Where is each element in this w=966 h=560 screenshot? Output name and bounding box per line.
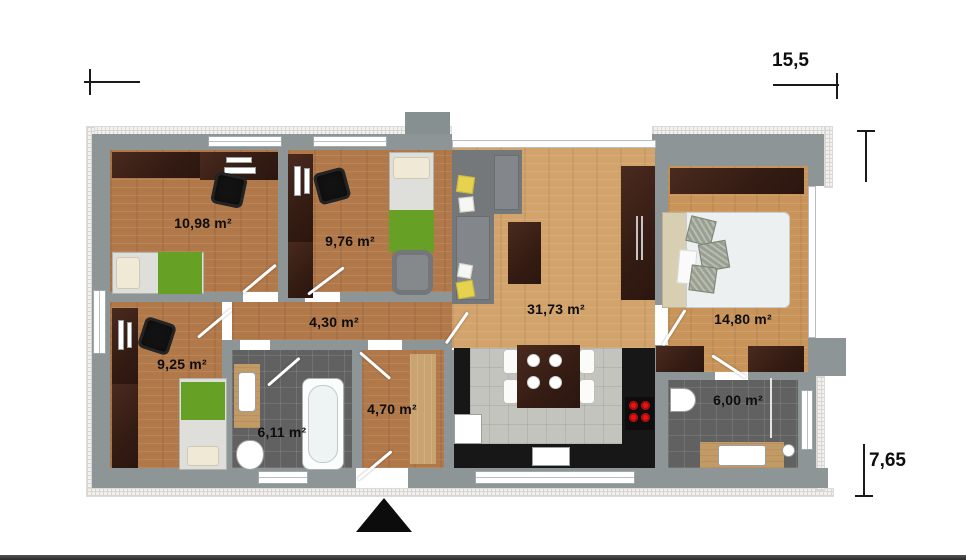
room3-desk xyxy=(112,308,138,384)
room2-desk-monitor xyxy=(294,166,301,196)
living-room-area-label: 31,73 m² xyxy=(506,301,606,317)
wall-bedroom-bottom-a xyxy=(668,372,715,380)
living-room-glass-front xyxy=(452,140,656,148)
room2-area-label: 9,76 m² xyxy=(300,233,400,249)
bathroom2-washbasin xyxy=(718,445,766,466)
room2-armchair xyxy=(392,250,433,295)
room3-wardrobe xyxy=(112,384,138,468)
room1-area-label: 10,98 m² xyxy=(148,215,258,231)
room2-bed-pillow xyxy=(393,157,430,179)
total-depth-label: 7,65 xyxy=(869,450,906,472)
tv-cabinet-handle-2 xyxy=(641,216,643,260)
room1-bed-pillow xyxy=(116,257,140,289)
page-edge-strip xyxy=(0,555,966,560)
dining-chair-3 xyxy=(579,349,595,374)
coffee-table xyxy=(508,222,541,284)
sofa-pillow-white-1 xyxy=(458,196,474,212)
dimension-line-right-bottom xyxy=(863,444,865,497)
bedroom-wardrobe-bottom-right xyxy=(748,346,804,372)
room1-desk-monitor xyxy=(226,157,252,163)
dining-plate-3 xyxy=(527,376,540,389)
wall-hall2-right xyxy=(444,350,454,468)
room3-area-label: 9,25 m² xyxy=(132,356,232,372)
room1-bed-blanket xyxy=(158,252,202,294)
bathroom1-toilet xyxy=(236,440,264,470)
room2-desk-keyboard xyxy=(304,168,310,194)
bedroom-pillow-3 xyxy=(688,264,717,293)
total-width-label: 15,5 xyxy=(772,50,809,72)
dining-table xyxy=(517,345,580,408)
tv-cabinet-handle-1 xyxy=(636,216,638,260)
dimension-line-top-left xyxy=(84,81,140,83)
bedroom-glass-right xyxy=(808,186,816,338)
room1-office-chair xyxy=(210,171,248,209)
wall-bedroom-corner xyxy=(806,134,824,186)
window-right-bath2 xyxy=(801,390,813,450)
window-left xyxy=(93,290,106,354)
bathroom1-washbasin xyxy=(238,372,256,412)
sofa-chaise-cushion xyxy=(494,155,519,210)
bedroom-area-label: 14,80 m² xyxy=(693,311,793,327)
sofa-pillow-white-2 xyxy=(457,263,473,279)
stove-burner-4 xyxy=(641,413,650,422)
room3-desk-monitor xyxy=(118,320,124,350)
wall-hallway-bottom-a xyxy=(232,340,240,350)
window-bottom-kitchen xyxy=(475,471,635,484)
kitchen-sink xyxy=(532,447,570,466)
insulation-hatch-bottom xyxy=(86,488,834,497)
bedroom-wardrobe-bottom-left xyxy=(656,346,704,372)
stove-burner-3 xyxy=(629,413,638,422)
dimension-tick-top-left xyxy=(89,69,91,95)
dimension-line-right-top xyxy=(865,130,867,182)
floor-plan-canvas: 10,98 m² 9,76 m² 4,30 m² 9,25 m² 6,11 m²… xyxy=(0,0,966,560)
bathroom2-shower-partition xyxy=(770,378,772,438)
entrance-arrow-icon xyxy=(356,498,412,532)
room3-desk-keyboard xyxy=(127,322,132,348)
dimension-tick-top-right xyxy=(836,73,838,99)
room3-bed-blanket xyxy=(181,382,225,420)
wall-bedroom-bottom-b xyxy=(748,372,810,380)
wall-between-rooms-1-2 xyxy=(278,150,288,292)
dining-chair-4 xyxy=(579,379,595,404)
tv-cabinet xyxy=(621,166,655,300)
sofa-pillow-yellow-2 xyxy=(456,280,476,300)
wall-bedroom-top xyxy=(652,134,824,166)
hallway-area-label: 4,30 m² xyxy=(284,314,384,330)
window-bottom-bath1 xyxy=(258,471,308,484)
stove-burner-1 xyxy=(629,401,638,410)
bedroom-wardrobe-top xyxy=(670,168,804,194)
room1-wardrobe xyxy=(112,152,200,178)
bathroom2-shower-head xyxy=(782,444,795,457)
room2-wardrobe xyxy=(288,242,313,298)
dimension-tick-right-bottom xyxy=(855,495,873,497)
dimension-line-top-right xyxy=(773,84,839,86)
window-top-1 xyxy=(208,136,282,147)
stove-burner-2 xyxy=(641,401,650,410)
wall-bottom xyxy=(92,468,828,488)
dining-plate-2 xyxy=(549,354,562,367)
dining-plate-1 xyxy=(527,354,540,367)
wall-hallway-bottom-b xyxy=(270,340,368,350)
entrance-hall-area-label: 4,70 m² xyxy=(342,401,442,417)
room3-bed-pillow xyxy=(187,446,219,466)
sofa-pillow-yellow-1 xyxy=(456,175,475,194)
fridge xyxy=(454,414,482,444)
window-top-2 xyxy=(313,136,387,147)
bathroom1-area-label: 6,11 m² xyxy=(232,424,332,440)
bathroom2-area-label: 6,00 m² xyxy=(688,392,788,408)
insulation-hatch-right-top xyxy=(824,126,833,188)
dining-plate-4 xyxy=(549,376,562,389)
